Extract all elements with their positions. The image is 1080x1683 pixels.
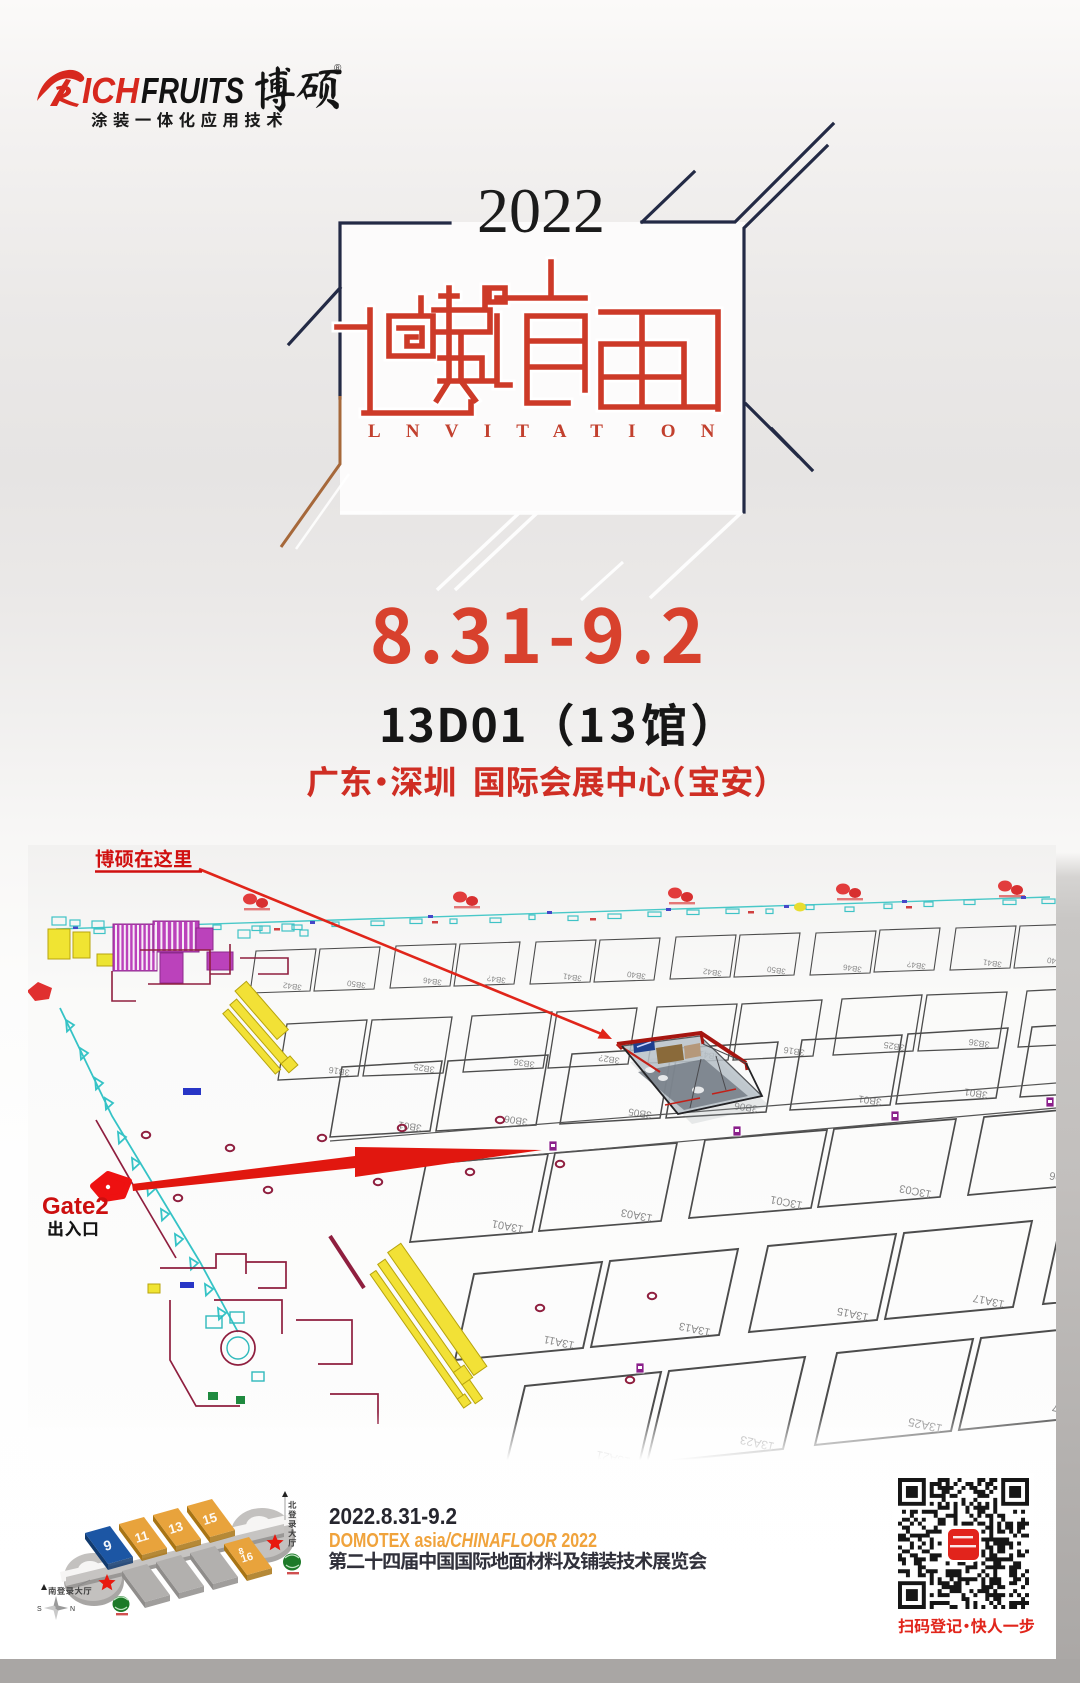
svg-text:ICH: ICH [82, 70, 140, 111]
svg-text:FRUITS: FRUITS [141, 70, 244, 111]
svg-text:DOMOTEX asia/CHINAFLOOR 2022: DOMOTEX asia/CHINAFLOOR 2022 [329, 1530, 597, 1552]
svg-text:N: N [70, 1606, 75, 1613]
svg-text:2022: 2022 [477, 175, 605, 246]
svg-text:®: ® [334, 63, 342, 74]
svg-text:Gate2: Gate2 [42, 1193, 109, 1220]
svg-text:S: S [37, 1606, 42, 1613]
svg-text:2022.8.31-9.2: 2022.8.31-9.2 [329, 1503, 457, 1529]
svg-text:LNVITATION: LNVITATION [368, 421, 740, 442]
